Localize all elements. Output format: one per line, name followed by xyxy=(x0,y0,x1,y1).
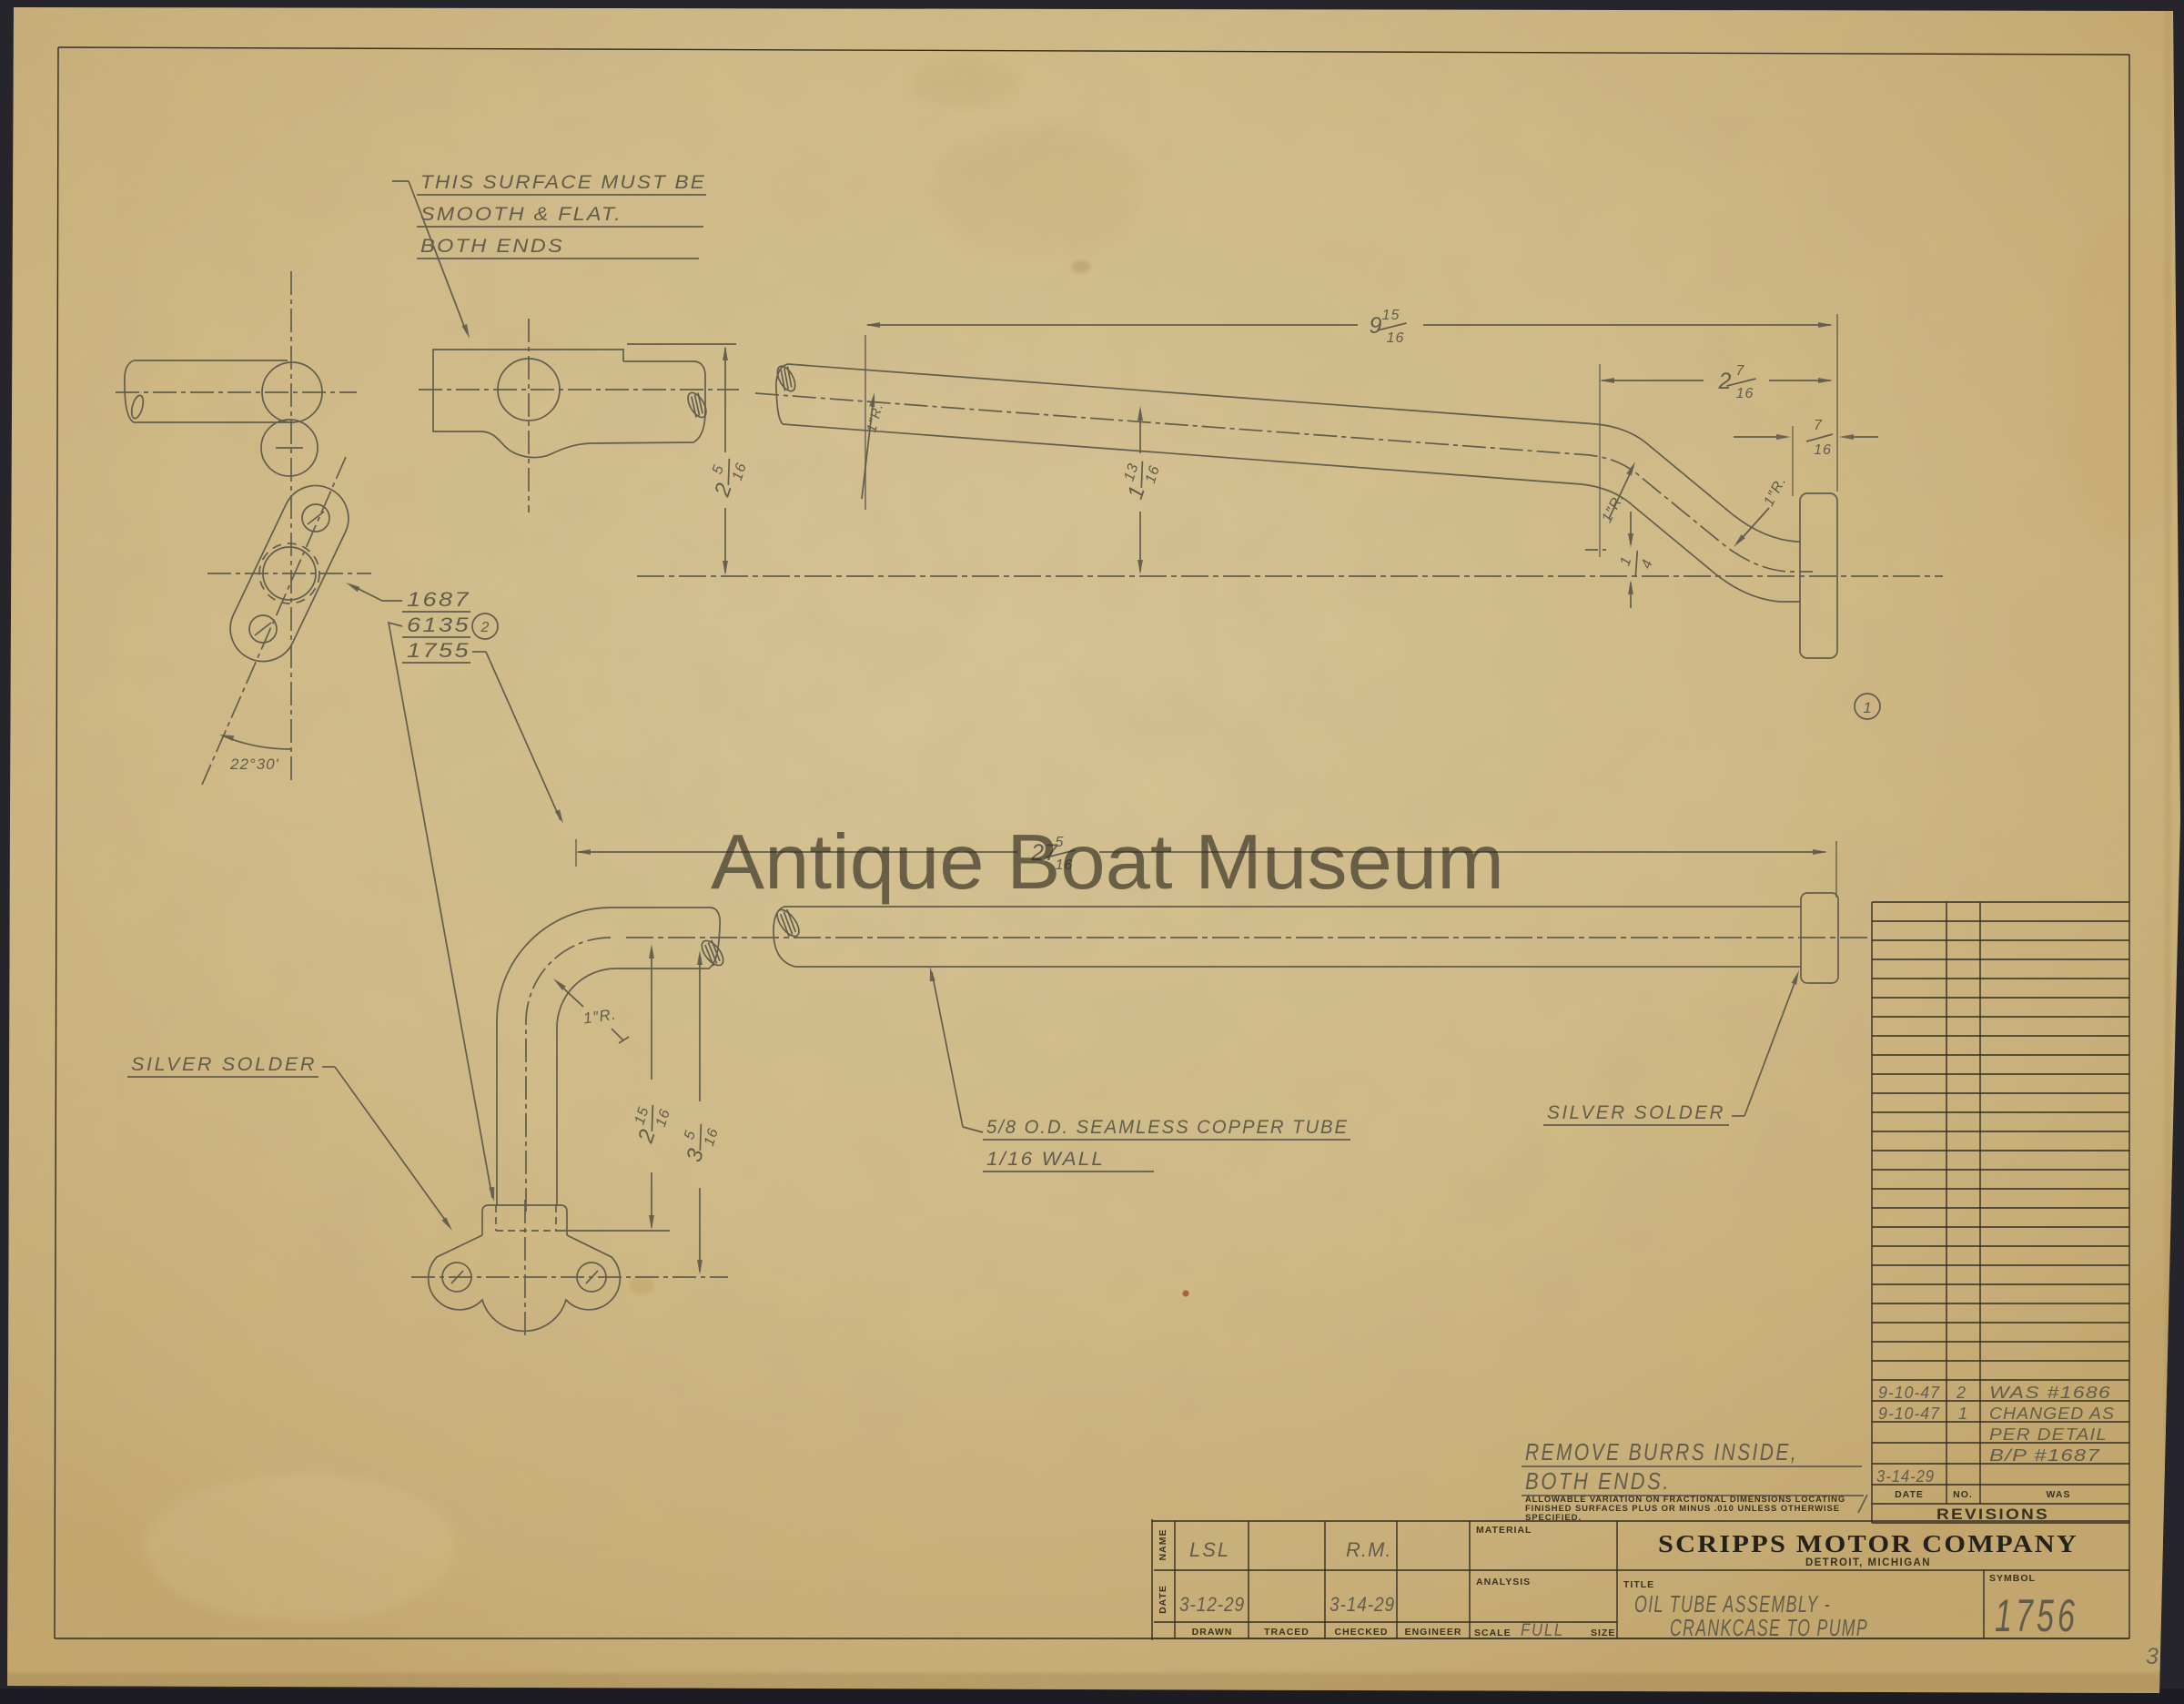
svg-text:NAME: NAME xyxy=(1158,1529,1168,1561)
svg-text:2: 2 xyxy=(1956,1384,1966,1402)
svg-text:REVISIONS: REVISIONS xyxy=(1936,1506,2049,1523)
svg-text:SILVER SOLDER: SILVER SOLDER xyxy=(131,1054,317,1075)
svg-text:9-10-47: 9-10-47 xyxy=(1878,1405,1940,1423)
svg-text:DETROIT, MICHIGAN: DETROIT, MICHIGAN xyxy=(1805,1557,1931,1568)
svg-text:SYMBOL: SYMBOL xyxy=(1989,1573,2036,1584)
svg-text:NO.: NO. xyxy=(1953,1489,1973,1500)
svg-text:ANALYSIS: ANALYSIS xyxy=(1476,1577,1531,1587)
svg-text:CRANKCASE TO PUMP: CRANKCASE TO PUMP xyxy=(1670,1614,1868,1641)
svg-text:SCALE: SCALE xyxy=(1474,1628,1512,1638)
svg-text:CHECKED: CHECKED xyxy=(1335,1627,1389,1638)
svg-text:16: 16 xyxy=(1736,386,1754,401)
svg-text:FULL: FULL xyxy=(1521,1621,1564,1640)
svg-text:3-12-29: 3-12-29 xyxy=(1179,1593,1245,1616)
svg-text:DRAWN: DRAWN xyxy=(1192,1627,1233,1638)
svg-text:16: 16 xyxy=(1387,330,1405,346)
svg-text:MATERIAL: MATERIAL xyxy=(1476,1525,1532,1536)
svg-text:BOTH ENDS.: BOTH ENDS. xyxy=(1525,1467,1671,1495)
svg-text:22°30': 22°30' xyxy=(229,756,279,773)
svg-text:1755: 1755 xyxy=(407,639,470,662)
svg-text:BOTH ENDS: BOTH ENDS xyxy=(420,236,564,257)
svg-text:PER DETAIL: PER DETAIL xyxy=(1989,1425,2108,1444)
svg-text:2: 2 xyxy=(480,620,490,635)
svg-text:ENGINEER: ENGINEER xyxy=(1405,1627,1462,1638)
svg-text:15: 15 xyxy=(1382,308,1400,323)
svg-text:16: 16 xyxy=(1814,442,1832,458)
svg-text:1/16 WALL: 1/16 WALL xyxy=(986,1149,1105,1170)
svg-text:9: 9 xyxy=(1370,313,1383,339)
svg-text:LSL: LSL xyxy=(1189,1538,1230,1561)
svg-text:3-14-29: 3-14-29 xyxy=(1876,1467,1935,1486)
svg-text:3-14-29: 3-14-29 xyxy=(1330,1593,1395,1616)
svg-text:2: 2 xyxy=(1718,369,1733,394)
svg-text:THIS SURFACE MUST BE: THIS SURFACE MUST BE xyxy=(420,172,706,193)
svg-text:SMOOTH & FLAT.: SMOOTH & FLAT. xyxy=(420,204,622,225)
svg-text:B/P #1687: B/P #1687 xyxy=(1989,1446,2100,1465)
svg-text:7: 7 xyxy=(1814,418,1823,433)
svg-text:REMOVE BURRS INSIDE,: REMOVE BURRS INSIDE, xyxy=(1525,1438,1798,1466)
svg-text:WAS #1686: WAS #1686 xyxy=(1989,1384,2111,1402)
svg-text:5/8 O.D. SEAMLESS COPPER TUBE: 5/8 O.D. SEAMLESS COPPER TUBE xyxy=(986,1117,1349,1138)
svg-text:TRACED: TRACED xyxy=(1264,1627,1309,1638)
svg-text:DATE: DATE xyxy=(1158,1585,1168,1614)
svg-text:9-10-47: 9-10-47 xyxy=(1878,1384,1940,1402)
svg-text:SIZE: SIZE xyxy=(1591,1628,1615,1638)
svg-text:Antique Boat Museum: Antique Boat Museum xyxy=(711,819,1504,906)
svg-text:TITLE: TITLE xyxy=(1623,1579,1654,1590)
svg-text:SCRIPPS MOTOR COMPANY: SCRIPPS MOTOR COMPANY xyxy=(1658,1530,2078,1557)
svg-text:1: 1 xyxy=(1863,699,1871,716)
svg-text:DATE: DATE xyxy=(1895,1489,1924,1500)
svg-text:1756: 1756 xyxy=(1995,1590,2078,1641)
svg-text:3: 3 xyxy=(2146,1644,2159,1669)
svg-text:CHANGED AS: CHANGED AS xyxy=(1989,1405,2115,1423)
svg-text:WAS: WAS xyxy=(2047,1489,2071,1500)
svg-text:6135: 6135 xyxy=(407,614,470,636)
svg-text:SILVER SOLDER: SILVER SOLDER xyxy=(1547,1102,1725,1123)
svg-text:1687: 1687 xyxy=(407,588,470,611)
svg-text:1: 1 xyxy=(1958,1405,1967,1423)
svg-text:R.M.: R.M. xyxy=(1346,1538,1391,1561)
svg-text:7: 7 xyxy=(1736,363,1745,379)
